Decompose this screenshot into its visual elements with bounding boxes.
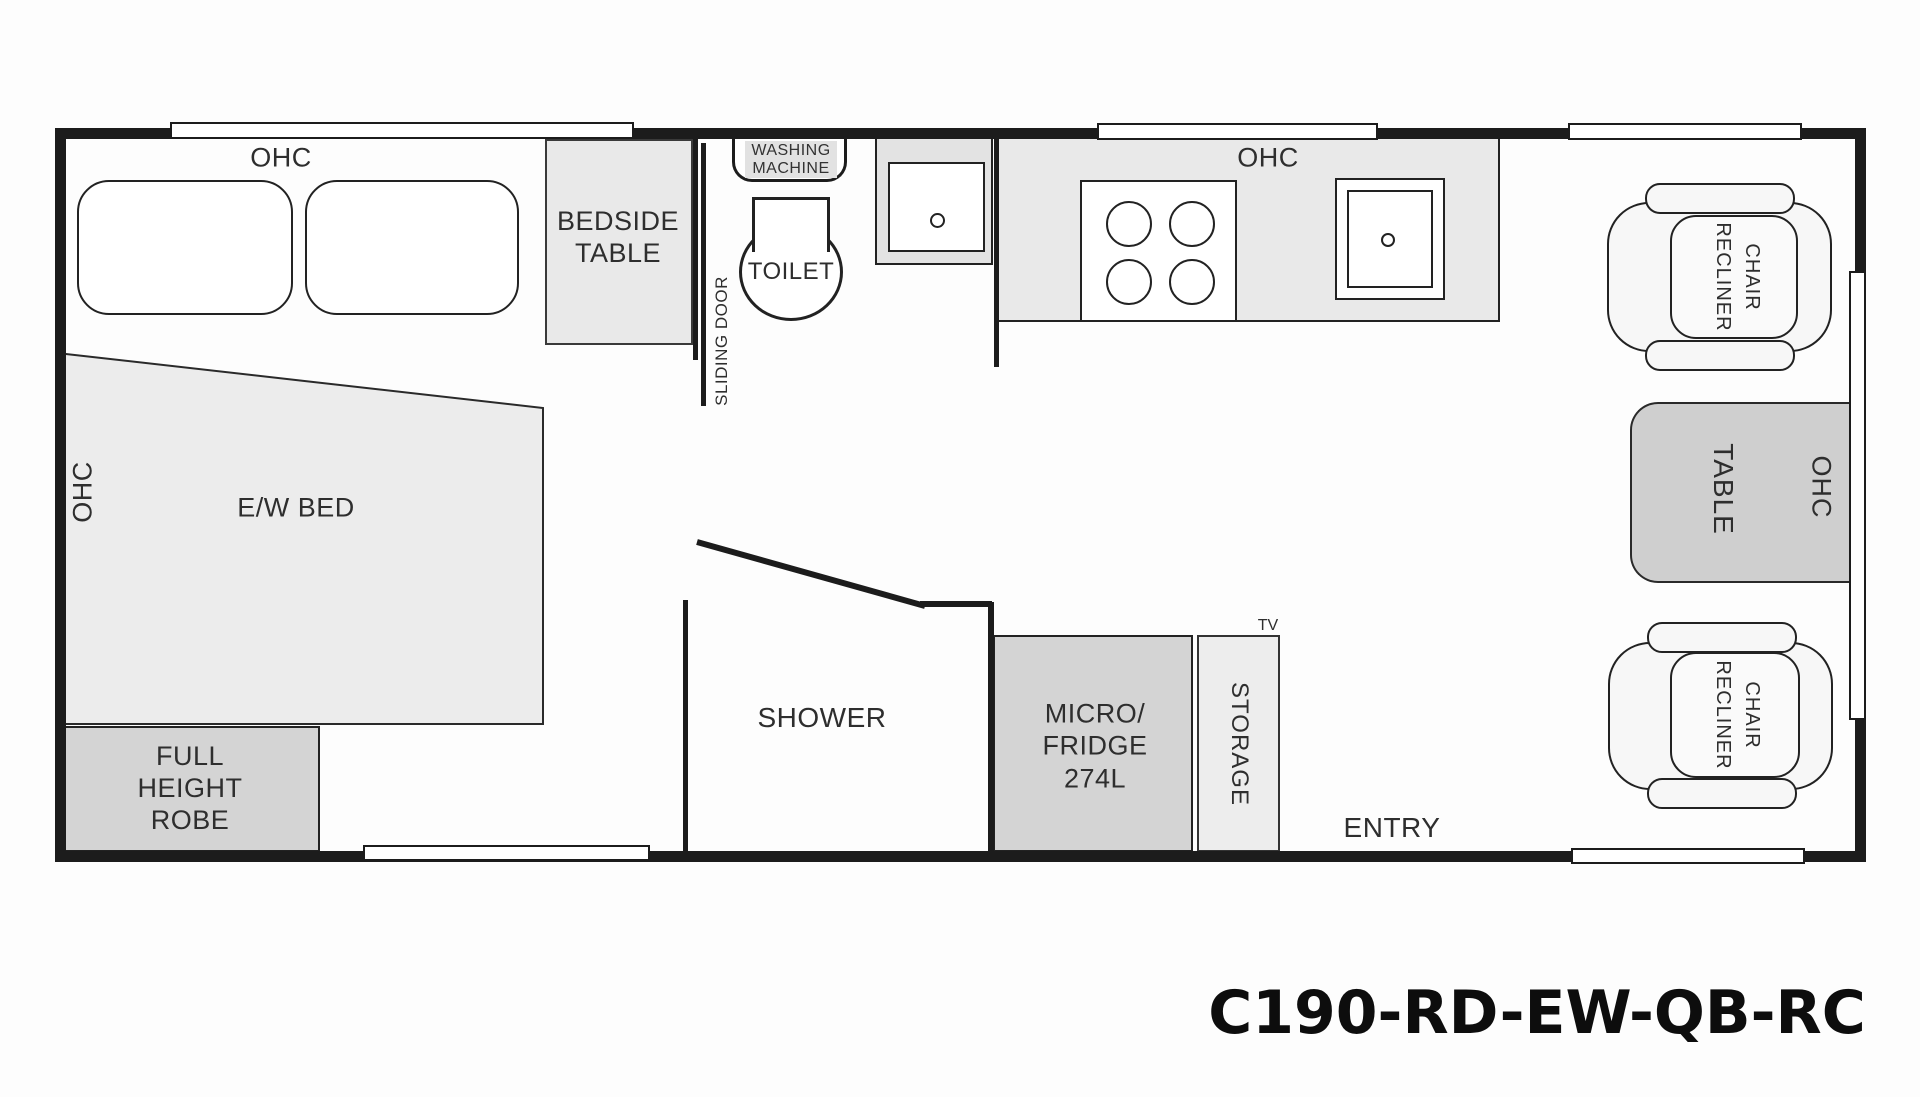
cooktop-burner [1106,201,1152,247]
bedroom-ohc-side-label: OHC [67,461,98,523]
recliner-front-label: RECLINERCHAIR [1708,222,1766,331]
recliner-chair-front-backrest [1645,183,1795,214]
tv-label: TV [1258,617,1278,635]
bed-pillow-right [305,180,519,315]
micro-fridge-label: MICRO/ FRIDGE 274L [1042,697,1147,794]
kitchen-ohc-label: OHC [1237,142,1299,173]
shower-left-wall [683,600,688,856]
bathroom-kitchen-wall [994,132,999,367]
washing-machine-label-line1: WASHING [751,142,830,159]
window-bottom-lounge [1571,848,1805,864]
recliner-chair-rear-backrest [1647,622,1797,653]
toilet-tank [752,197,830,252]
sliding-door-label: SLIDING DOOR [712,276,732,406]
recliner-rear-label-line2: CHAIR [1737,660,1766,769]
cooktop [1080,180,1237,322]
washing-machine-label-line2: MACHINE [752,160,829,177]
micro-fridge-label-line3: 274L [1064,763,1126,793]
table-label: TABLE [1707,443,1739,535]
bedside-table-label-line1: BEDSIDE [557,206,679,236]
recliner-front-label-line1: RECLINER [1708,222,1737,331]
recliner-front-label-line2: CHAIR [1737,222,1766,331]
window-top-lounge [1568,123,1802,140]
bed-pillow-left [77,180,293,315]
shower-right-wall [988,602,994,856]
bedroom-divider-wall [693,132,698,360]
window-top-kitchen [1097,123,1378,140]
recliner-rear-label: RECLINERCHAIR [1708,660,1766,769]
micro-fridge-label-line2: FRIDGE [1042,731,1147,761]
floorplan-canvas: OHC OHC E/W BED BEDSIDE TABLE FULL HEIGH… [0,0,1920,1097]
bedroom-ohc-label: OHC [250,142,312,173]
washing-machine-label: WASHING MACHINE [751,142,830,178]
cooktop-burner [1169,201,1215,247]
cooktop-burner [1106,259,1152,305]
bathroom-sink-drain [930,213,945,228]
window-bottom-bedroom [363,845,650,861]
window-top-bedroom [170,122,634,139]
shower-top-wall [920,601,992,607]
bed-label: E/W BED [237,492,355,523]
east-west-bed-shape [57,353,543,724]
model-code-text: C190-RD-EW-QB-RC [1208,978,1865,1048]
shower-label: SHOWER [758,702,887,734]
robe-label: FULL HEIGHT ROBE [137,741,242,837]
exterior-wall-left [55,128,66,862]
recliner-chair-front-footrest [1645,340,1795,371]
bedside-table-label-line2: TABLE [575,238,661,268]
robe-label-line3: ROBE [151,805,230,835]
robe-label-line1: FULL [156,741,224,771]
entry-label: ENTRY [1344,812,1441,844]
kitchen-sink-drain [1381,233,1395,247]
bathroom-sink-basin [888,162,985,252]
toilet-label: TOILET [748,258,835,286]
micro-fridge-label-line1: MICRO/ [1045,698,1146,728]
recliner-chair-rear-footrest [1647,778,1797,809]
sliding-door-track [701,143,706,406]
lounge-ohc-label: OHC [1806,456,1837,519]
cooktop-burner [1169,259,1215,305]
storage-label: STORAGE [1225,682,1253,806]
window-right-lounge [1849,271,1866,720]
bedside-table-label: BEDSIDE TABLE [557,206,679,270]
robe-label-line2: HEIGHT [137,773,242,803]
shower-angled-wall [697,542,925,606]
recliner-rear-label-line1: RECLINER [1708,660,1737,769]
